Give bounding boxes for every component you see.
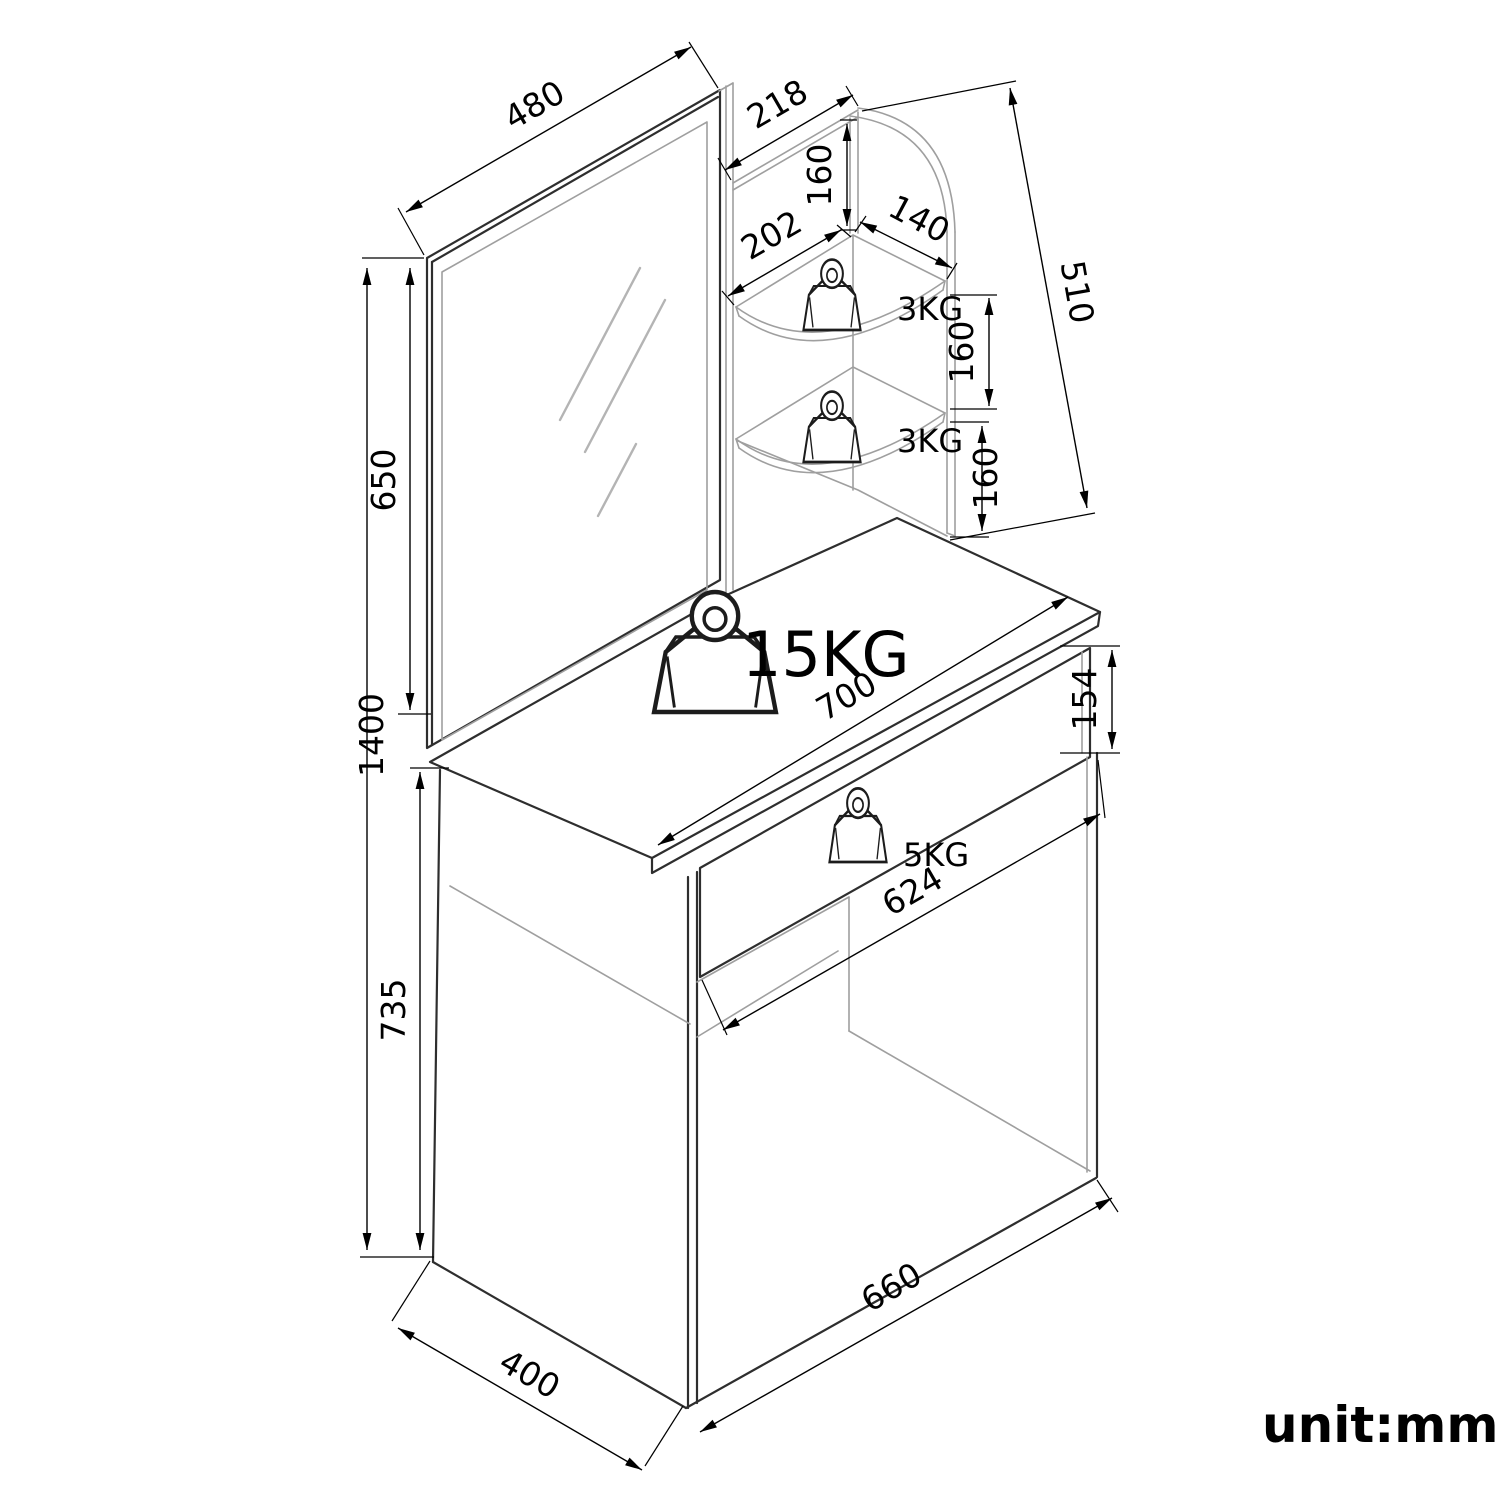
dim-label-tabletop-height: 735 (374, 979, 413, 1042)
dimension-tabletop-height: 735 (374, 768, 449, 1250)
capacity-label-tabletop: 15KG (742, 618, 910, 691)
capacity-label-lower-shelf: 3KG (897, 422, 963, 460)
side-back-edge (433, 770, 440, 1262)
dimension-shelf-side-edge: 140 (855, 187, 957, 279)
dim-label-shelf-unit-height: 510 (1053, 258, 1102, 327)
dim-label-total-height: 1400 (352, 693, 391, 777)
unit-note: unit:mm (1262, 1396, 1498, 1454)
dim-label-shelf-gap-mid: 160 (942, 321, 981, 384)
dimension-mirror-width: 480 (398, 42, 718, 255)
dim-label-top-shelf-gap: 160 (800, 144, 839, 207)
dim-label-drawer-front-height: 154 (1065, 668, 1104, 731)
dim-label-top-shelf-depth: 218 (740, 71, 814, 136)
interior-lines (697, 897, 1090, 1171)
weight-icon-3kg-lower (803, 392, 860, 462)
dim-label-mirror-height: 650 (364, 449, 403, 512)
dim-label-base-width: 660 (854, 1254, 928, 1319)
dimension-base-width: 660 (700, 1180, 1118, 1432)
dimension-drawer-width: 624 (702, 760, 1105, 1035)
mirror-reflection-lines (560, 268, 665, 516)
dim-label-shelf-gap-low: 160 (966, 447, 1005, 510)
side-top-edge (450, 886, 690, 1024)
mirror-frame-top-inner (432, 97, 718, 262)
weight-icon-5kg (829, 788, 886, 862)
dimension-mirror-height: 650 (362, 258, 431, 714)
dim-label-shelf-front-edge: 202 (734, 202, 808, 267)
dim-label-base-depth: 400 (493, 1341, 567, 1406)
dimension-base-depth: 400 (392, 1261, 683, 1470)
side-bottom-edge (433, 1262, 686, 1408)
weight-icon-3kg-upper (803, 260, 860, 330)
technical-drawing-page: 15KG 5KG 3KG 3KG 480 218 160 202 140 (0, 0, 1500, 1500)
cabinet-base (433, 753, 1097, 1408)
dim-label-mirror-width: 480 (497, 72, 571, 137)
dim-label-shelf-side-edge: 140 (882, 187, 956, 251)
dimension-total-height: 1400 (352, 268, 434, 1257)
dimension-top-shelf-gap: 160 (800, 120, 857, 230)
dressing-table-dimension-diagram: 15KG 5KG 3KG 3KG 480 218 160 202 140 (0, 0, 1500, 1500)
